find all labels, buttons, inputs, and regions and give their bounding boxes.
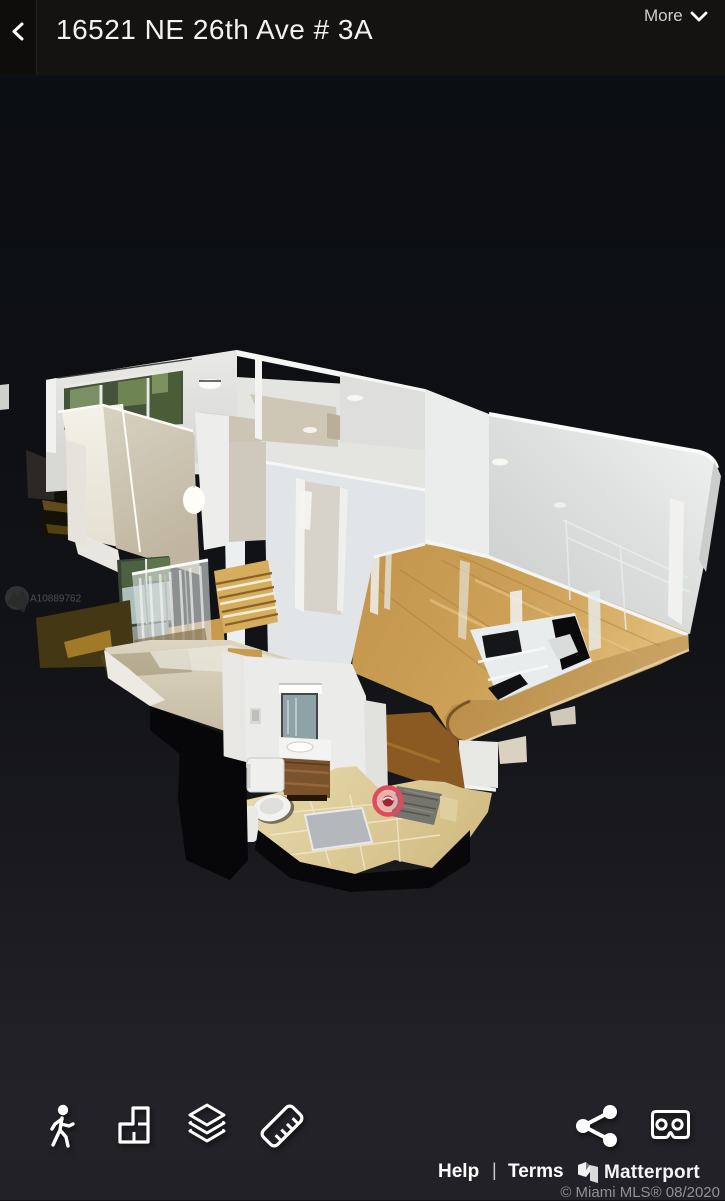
svg-text:A10889762: A10889762: [30, 594, 82, 605]
